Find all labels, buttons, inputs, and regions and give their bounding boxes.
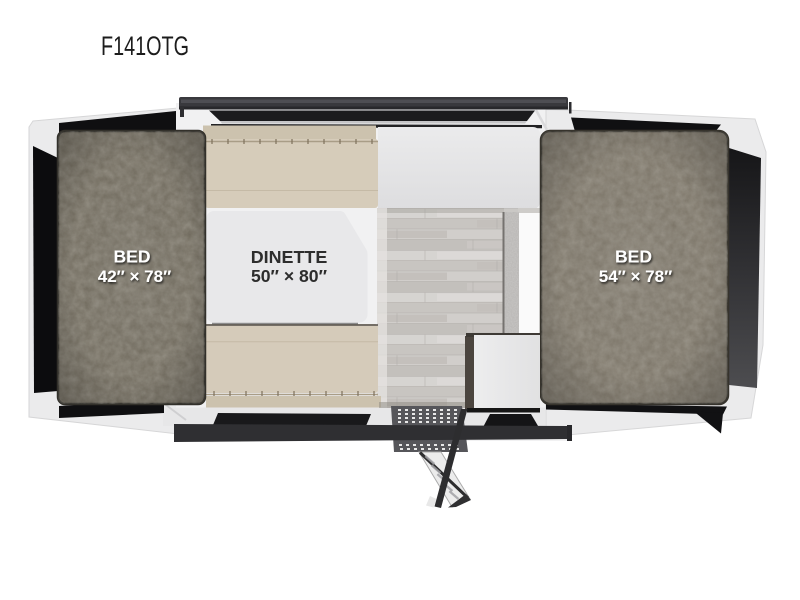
svg-text:54″ × 78″: 54″ × 78″	[599, 267, 672, 286]
svg-text:BED: BED	[615, 247, 652, 267]
svg-text:F141OTG: F141OTG	[101, 31, 189, 61]
svg-text:50″ × 80″: 50″ × 80″	[251, 266, 328, 286]
svg-text:BED: BED	[114, 247, 151, 267]
svg-text:DINETTE: DINETTE	[251, 247, 328, 267]
svg-text:42″ × 78″: 42″ × 78″	[98, 267, 171, 286]
